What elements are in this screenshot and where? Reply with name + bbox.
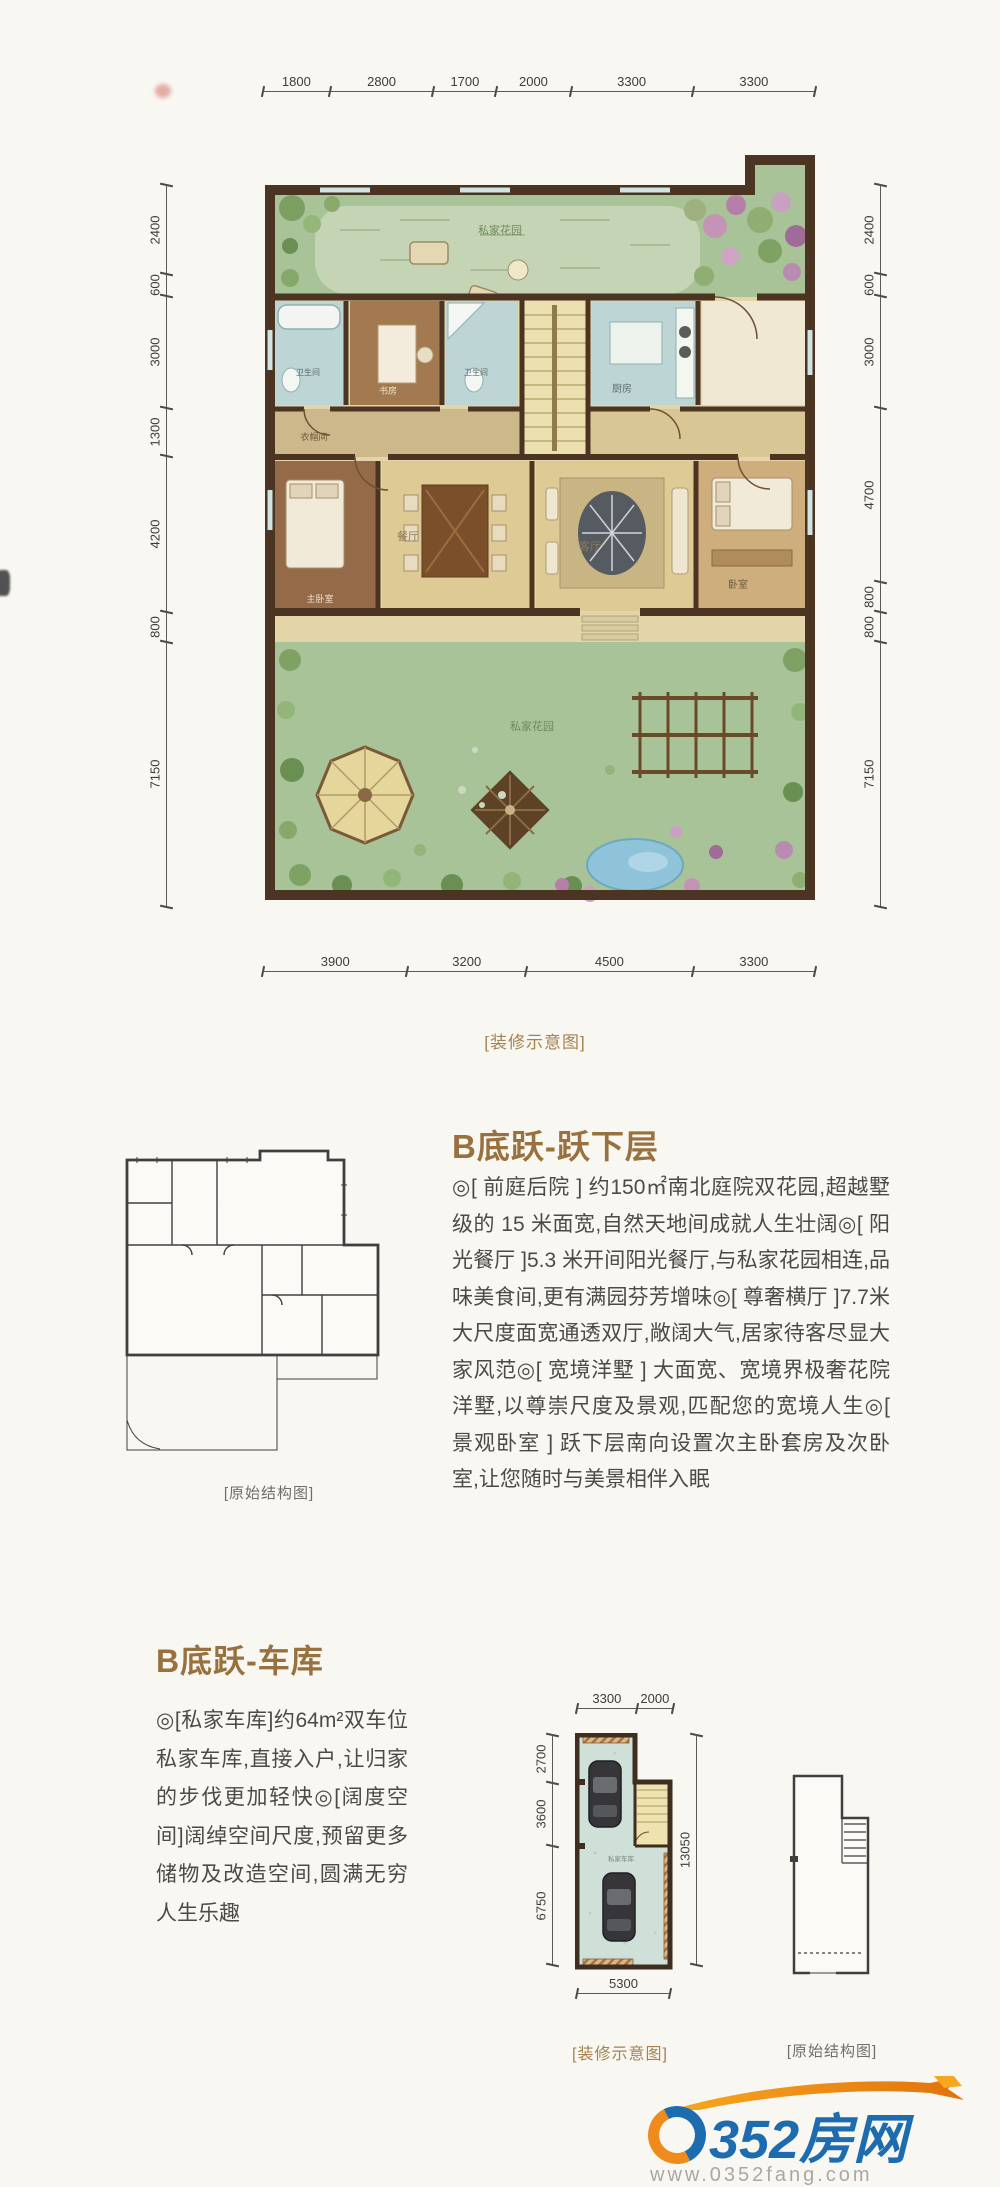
bath1-label: 卫生间 bbox=[296, 367, 320, 377]
logo-url: www.0352fang.com bbox=[650, 2164, 873, 2187]
cloakroom-label: 衣帽间 bbox=[300, 431, 327, 442]
bedroom-label: 卧室 bbox=[728, 578, 748, 591]
section-lower-body: ◎[ 前庭后院 ] 约150㎡南北庭院双花园,超越墅级的 15 米面宽,自然天地… bbox=[452, 1170, 890, 1499]
dim-segment: 3000 bbox=[866, 296, 890, 407]
dim-segment: 3000 bbox=[152, 296, 176, 407]
dim-segment: 4200 bbox=[152, 456, 176, 612]
dim-segment: 800 bbox=[152, 612, 176, 642]
kitchen-label: 厨房 bbox=[612, 382, 632, 395]
garage-room-label: 私家车库 bbox=[608, 1854, 635, 1863]
dim-segment: 800 bbox=[866, 582, 890, 612]
garden-top-label: 私家花园 bbox=[478, 223, 522, 237]
dim-segment: 2000 bbox=[496, 72, 570, 92]
garage-top-dimensions: 3300 2000 bbox=[577, 1689, 673, 1709]
dim-segment: 5300 bbox=[577, 1974, 670, 1994]
dim-segment: 3200 bbox=[407, 952, 526, 972]
dim-segment: 3600 bbox=[538, 1783, 562, 1846]
dim-segment: 2800 bbox=[330, 72, 434, 92]
structural-plan-lower bbox=[112, 1145, 392, 1460]
study-label: 书房 bbox=[379, 385, 397, 396]
main-plan-right-dimensions: 2400 600 3000 4700 800 800 7150 bbox=[866, 185, 890, 907]
garage-left-dimensions: 2700 3600 6750 bbox=[538, 1735, 562, 1965]
logo-roof-icon bbox=[672, 2076, 982, 2110]
garage-bottom-dimensions: 5300 bbox=[577, 1974, 670, 1994]
structural-plan-lower-caption: [原始结构图] bbox=[194, 1482, 344, 1503]
structural-plan-garage bbox=[782, 1768, 882, 1983]
main-plan-bottom-dimensions: 3900 3200 4500 3300 bbox=[263, 952, 815, 972]
dim-segment: 4500 bbox=[526, 952, 693, 972]
living-label: 客厅 bbox=[579, 539, 601, 553]
garage-floorplan: 私家车库 bbox=[575, 1733, 675, 1971]
scan-artifact-ink bbox=[0, 570, 10, 596]
dim-segment: 1300 bbox=[152, 408, 176, 456]
main-plan-top-dimensions: 1800 2800 1700 2000 3300 3300 bbox=[263, 72, 815, 92]
dim-segment: 800 bbox=[866, 612, 890, 642]
dim-segment: 1700 bbox=[433, 72, 496, 92]
dim-segment: 4700 bbox=[866, 408, 890, 582]
bath2-label: 卫生间 bbox=[464, 367, 488, 377]
dim-segment: 3300 bbox=[693, 952, 815, 972]
structural-plan-garage-caption: [原始结构图] bbox=[757, 2040, 907, 2061]
brochure-page: { "floorplan_top": { "dims_top": ["1800"… bbox=[0, 0, 1000, 2187]
dim-segment: 3300 bbox=[693, 72, 815, 92]
dim-segment: 2700 bbox=[538, 1735, 562, 1783]
section-garage-body: ◎[私家车库]约64m²双车位私家车库,直接入户,让归家的步伐更加轻快◎[阔度空… bbox=[156, 1702, 408, 1933]
main-plan-left-dimensions: 2400 600 3000 1300 4200 800 7150 bbox=[152, 185, 176, 907]
main-plan-caption: [装修示意图] bbox=[460, 1028, 610, 1053]
dim-segment: 3300 bbox=[577, 1689, 637, 1709]
dim-segment: 2400 bbox=[152, 185, 176, 274]
dim-segment: 6750 bbox=[538, 1846, 562, 1965]
logo-text: 352房网 bbox=[648, 2106, 907, 2167]
dining-label: 餐厅 bbox=[397, 529, 419, 543]
dim-segment: 1800 bbox=[263, 72, 330, 92]
dim-segment: 7150 bbox=[866, 642, 890, 907]
dim-segment: 13050 bbox=[682, 1735, 706, 1965]
dim-segment: 2400 bbox=[866, 185, 890, 274]
section-garage-title: B底跃-车库 bbox=[156, 1636, 324, 1682]
garage-plan-caption: [装修示意图] bbox=[545, 2040, 695, 2064]
garage-right-dimensions: 13050 bbox=[682, 1735, 706, 1965]
dim-segment: 2000 bbox=[637, 1689, 673, 1709]
main-floorplan: 私家花园 bbox=[260, 150, 820, 910]
dim-segment: 7150 bbox=[152, 642, 176, 907]
dim-segment: 3300 bbox=[571, 72, 693, 92]
master-bedroom-label: 主卧室 bbox=[306, 593, 333, 604]
section-lower-title: B底跃-跃下层 bbox=[452, 1120, 659, 1168]
scan-artifact-red bbox=[155, 84, 171, 98]
logo-zero-ring bbox=[640, 2098, 713, 2171]
dim-segment: 600 bbox=[152, 274, 176, 296]
dim-segment: 3900 bbox=[263, 952, 407, 972]
site-logo: 352房网 www.0352fang.com bbox=[648, 2078, 990, 2184]
dim-segment: 600 bbox=[866, 274, 890, 296]
garden-bottom-label: 私家花园 bbox=[510, 719, 554, 733]
